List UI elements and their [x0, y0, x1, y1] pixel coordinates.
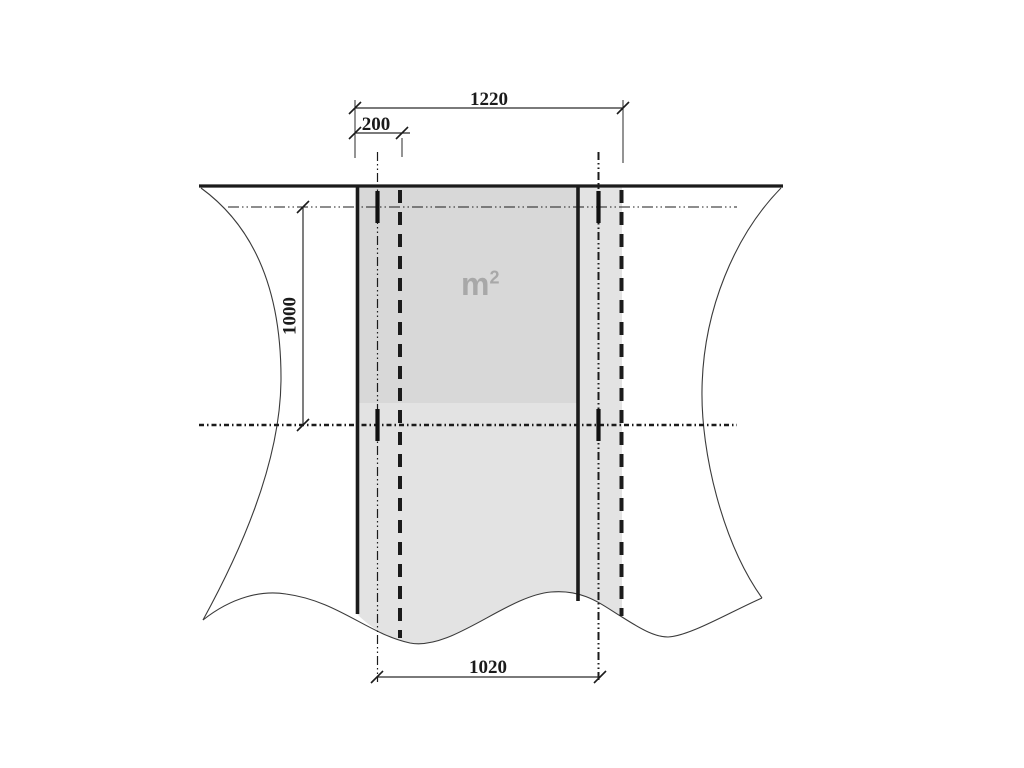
drawing-svg [0, 0, 1024, 768]
square-meter-exponent: 2 [489, 267, 499, 287]
square-meter-base: m [461, 266, 489, 302]
technical-drawing-canvas: 1220 200 1000 1020 m2 [0, 0, 1024, 768]
dim-total-width-label: 1220 [459, 90, 519, 109]
right-break-curve [702, 188, 781, 598]
left-break-curve [201, 188, 281, 620]
dim-overlap-label: 200 [353, 115, 399, 134]
square-meter-label: m2 [461, 268, 499, 300]
dim-length-label: 1000 [281, 297, 300, 335]
dim-cover-width-label: 1020 [458, 658, 518, 677]
